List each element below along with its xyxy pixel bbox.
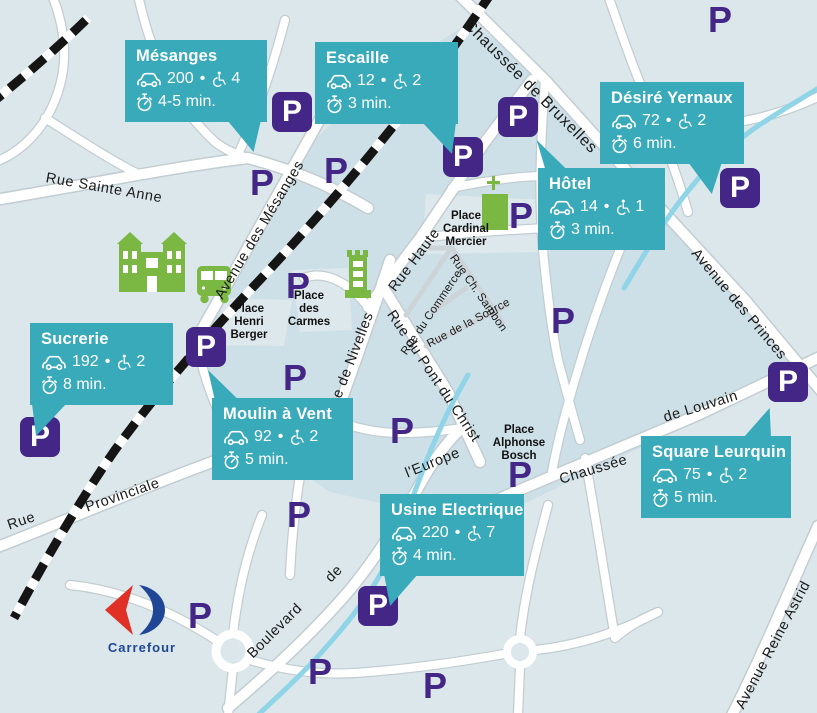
street-parking-p[interactable]: P [250,165,274,201]
wheelchair-icon [466,523,481,543]
stopwatch-icon [611,134,628,155]
walk-time: 6 min. [633,135,677,153]
p-icon: P [282,97,302,127]
parking-name: Mésanges [136,47,256,66]
disabled-count: 2 [738,466,747,484]
wheelchair-icon [677,111,692,131]
stopwatch-icon [326,94,343,115]
disabled-count: 2 [309,428,318,446]
wheelchair-icon [116,352,131,372]
street-parking-p[interactable]: P [286,268,310,304]
wheelchair-icon [289,427,304,447]
parking-marker-leurquin[interactable]: P [768,362,808,402]
separator-dot: • [105,353,111,371]
stopwatch-icon [391,546,408,567]
p-icon: P [778,367,798,397]
wheelchair-icon [392,71,407,91]
car-count: 192 [72,353,99,371]
p-icon: P [508,102,528,132]
parking-name: Escaille [326,49,447,68]
disabled-count: 7 [486,524,495,542]
parking-name: Désiré Yernaux [611,89,733,108]
wheelchair-icon [718,465,733,485]
parking-marker-yernaux[interactable]: P [720,168,760,208]
callout-mesanges[interactable]: Mésanges 200 • 4 4-5 min. [125,40,267,122]
parking-name: Usine Electrique [391,501,513,520]
car-icon [391,524,417,542]
parking-marker-moulin[interactable]: P [186,327,226,367]
car-icon [136,70,162,88]
walk-time: 5 min. [245,451,289,469]
car-count: 72 [642,112,660,130]
callout-usine-electrique[interactable]: Usine Electrique 220 • 7 4 min. [380,494,524,576]
street-parking-p[interactable]: P [551,303,575,339]
p-icon: P [196,332,216,362]
car-count: 200 [167,70,194,88]
callout-sucrerie[interactable]: Sucrerie 192 • 2 8 min. [30,323,173,405]
parking-name: Moulin à Vent [223,405,342,424]
street-parking-p[interactable]: P [423,668,447,704]
parking-marker-mesanges[interactable]: P [272,92,312,132]
street-parking-p[interactable]: P [287,497,311,533]
parking-name: Hôtel [549,175,654,194]
callout-escaille[interactable]: Escaille 12 • 2 3 min. [315,42,458,124]
disabled-count: 2 [412,72,421,90]
callout-desire-yernaux[interactable]: Désiré Yernaux 72 • 2 6 min. [600,82,744,164]
disabled-count: 2 [136,353,145,371]
place-label-cardinal-mercier: Place Cardinal Mercier [420,210,512,249]
separator-dot: • [666,112,672,130]
separator-dot: • [381,72,387,90]
street-parking-p[interactable]: P [308,654,332,690]
stopwatch-icon [41,375,58,396]
car-icon [549,198,575,216]
separator-dot: • [455,524,461,542]
car-icon [652,466,678,484]
car-count: 92 [254,428,272,446]
walk-time: 3 min. [571,221,615,239]
street-parking-p[interactable]: P [324,153,348,189]
street-parking-p[interactable]: P [509,198,533,234]
separator-dot: • [707,466,713,484]
walk-time: 4 min. [413,547,457,565]
street-parking-p[interactable]: P [708,2,732,38]
car-count: 12 [357,72,375,90]
car-count: 220 [422,524,449,542]
p-icon: P [730,173,750,203]
separator-dot: • [604,198,610,216]
car-count: 14 [580,198,598,216]
disabled-count: 1 [635,198,644,216]
walk-time: 8 min. [63,376,107,394]
street-parking-p[interactable]: P [390,413,414,449]
car-icon [326,72,352,90]
street-parking-p[interactable]: P [188,598,212,634]
disabled-count: 2 [697,112,706,130]
separator-dot: • [278,428,284,446]
carrefour-wordmark: Carrefour [108,640,176,655]
walk-time: 3 min. [348,95,392,113]
stopwatch-icon [223,450,240,471]
parking-name: Sucrerie [41,330,162,349]
street-parking-p[interactable]: P [508,457,532,493]
callout-moulin-a-vent[interactable]: Moulin à Vent 92 • 2 5 min. [212,398,353,480]
wheelchair-icon [615,197,630,217]
separator-dot: • [200,70,206,88]
parking-marker-bruxelles[interactable]: P [498,97,538,137]
wheelchair-icon [211,69,226,89]
p-icon: P [453,142,473,172]
callout-square-leurquin[interactable]: Square Leurquin 75 • 2 5 min. [641,436,791,518]
disabled-count: 4 [231,70,240,88]
stopwatch-icon [136,92,153,113]
car-count: 75 [683,466,701,484]
parking-name: Square Leurquin [652,443,780,462]
walk-time: 4-5 min. [158,93,216,111]
car-icon [611,112,637,130]
city-parking-map: Carrefour Chaussée de Bruxelles Rue Sain… [0,0,817,713]
walk-time: 5 min. [674,489,718,507]
car-icon [41,353,67,371]
street-parking-p[interactable]: P [283,360,307,396]
stopwatch-icon [549,220,566,241]
car-icon [223,428,249,446]
p-icon: P [368,591,388,621]
stopwatch-icon [652,488,669,509]
callout-hotel[interactable]: Hôtel 14 • 1 3 min. [538,168,665,250]
